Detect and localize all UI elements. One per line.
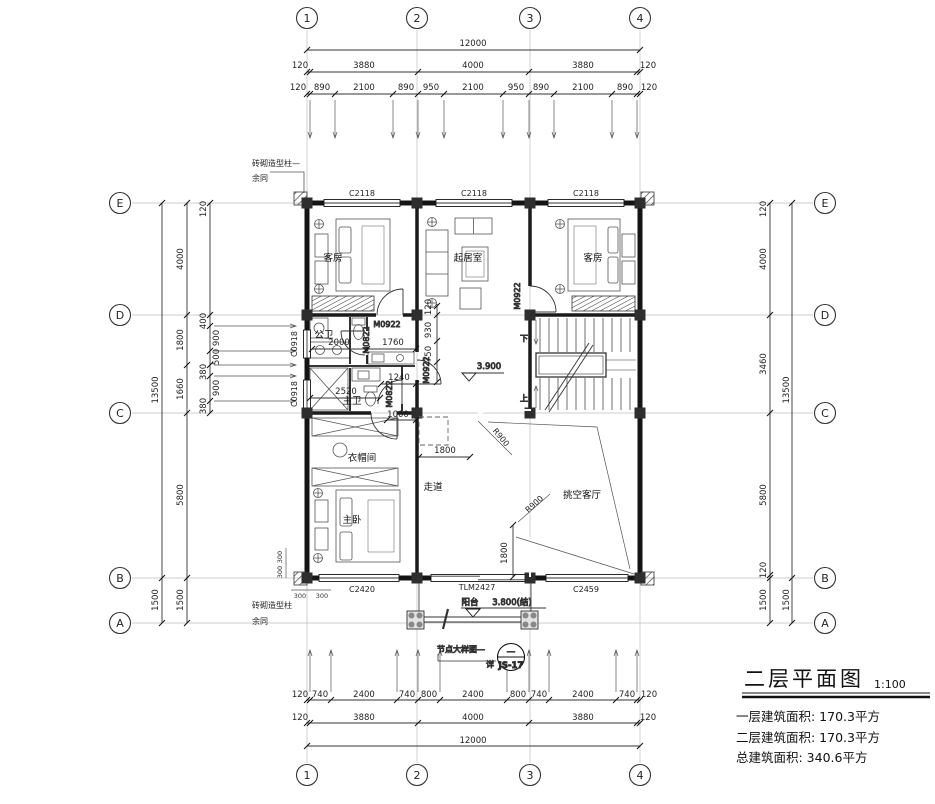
title-block: 二层平面图 1:100 一层建筑面积: 170.3平方 二层建筑面积: 170.… <box>736 667 930 765</box>
note-same-top: 余同 <box>252 173 268 183</box>
furniture-guest-left <box>312 219 390 311</box>
dim: 1800 <box>434 446 456 456</box>
dim: 120 <box>641 83 657 93</box>
grid-row-B: B <box>116 572 124 585</box>
dim: 1500 <box>782 589 792 611</box>
grid-row-Br: B <box>821 572 829 585</box>
room-label-living: 起居室 <box>454 252 483 264</box>
dim: 120 <box>641 690 657 700</box>
note-brick-column-bottom: 砖砌造型柱 <box>252 600 292 610</box>
dim: 120 <box>292 61 308 71</box>
dim: 1500 <box>759 589 769 611</box>
window-label: C2459 <box>573 585 599 594</box>
window-label: C0918 <box>290 331 299 357</box>
floor-plan-sheet: 1 2 3 4 1 2 3 4 E D C B A E D C B A 1200… <box>0 0 935 799</box>
dim: 930 <box>424 322 434 338</box>
detail-callout: — JS-17 节点大样图— 详 <box>437 644 525 672</box>
level-floor: 3.900 <box>477 362 501 372</box>
dim: 4000 <box>759 248 769 270</box>
dim: 4000 <box>462 713 484 723</box>
dim: 4000 <box>462 61 484 71</box>
dim: 750 <box>424 346 434 362</box>
dim: 740 <box>531 690 547 700</box>
dim: 900 <box>212 380 222 396</box>
level-balcony: 3.800(结) <box>492 597 531 608</box>
dim: 120 <box>199 201 209 217</box>
area-line-2: 二层建筑面积: 170.3平方 <box>736 730 880 745</box>
witness-lines <box>214 324 296 403</box>
dim: 1800 <box>500 542 510 564</box>
dim: 1500 <box>176 589 186 611</box>
dim: 120 <box>424 299 434 315</box>
dim: 5800 <box>759 484 769 506</box>
furniture-guest-right <box>556 219 636 311</box>
void-living-area: R900 R900 1800 1800 <box>416 410 634 580</box>
door-label: M0922 <box>513 282 522 309</box>
door-label: TLM2427 <box>458 583 496 592</box>
dim: 1800 <box>176 329 186 351</box>
radius-label: R900 <box>524 494 546 515</box>
grid-row-Dr: D <box>821 309 829 322</box>
dim: 1240 <box>388 373 410 383</box>
dim: 120 <box>759 201 769 217</box>
window-label: C2420 <box>349 585 375 594</box>
area-line-1: 一层建筑面积: 170.3平方 <box>736 709 880 724</box>
dim: 300 <box>316 592 328 600</box>
dim: 2100 <box>572 83 594 93</box>
grid-col-4b: 4 <box>637 769 644 782</box>
dim: 950 <box>508 83 524 93</box>
detail-note: 节点大样图— <box>437 644 485 654</box>
dim: 800 <box>421 690 437 700</box>
stairs: 下 上 <box>520 318 636 412</box>
grid-row-A: A <box>116 617 124 630</box>
dim: 890 <box>617 83 633 93</box>
dim: 1500 <box>151 589 161 611</box>
dim: 950 <box>423 83 439 93</box>
dim: 12000 <box>459 39 486 49</box>
grid-col-2b: 2 <box>414 769 421 782</box>
dim: 800 <box>510 690 526 700</box>
stair-down-label: 下 <box>520 334 528 343</box>
dim: 740 <box>399 690 415 700</box>
grid-col-3b: 3 <box>527 769 534 782</box>
room-label-wardrobe: 衣帽间 <box>348 452 377 464</box>
callout-sheet-ref: JS-17 <box>498 661 524 671</box>
grid-col-1: 1 <box>304 12 311 25</box>
grid-col-4: 4 <box>637 12 644 25</box>
dim: 3880 <box>572 61 594 71</box>
grid-col-1b: 1 <box>304 769 311 782</box>
window-label: C0918 <box>290 381 299 407</box>
drawing-title: 二层平面图 <box>744 667 864 691</box>
dim: 120 <box>640 61 656 71</box>
dim: 3460 <box>759 353 769 375</box>
grid-bubble-labels: 1 2 3 4 1 2 3 4 E D C B A E D C B A <box>116 12 829 782</box>
room-label-master: 主卧 <box>342 514 362 526</box>
room-label-guest-right: 客房 <box>583 252 602 264</box>
dimensions-top: 12000 120 3880 4000 3880 120 120 890 210… <box>290 39 657 138</box>
balcony-name: 阳台 <box>461 597 478 608</box>
room-label-bath-master: 主卫 <box>342 395 362 407</box>
dim: 120 <box>640 713 656 723</box>
window-label: C2118 <box>461 189 487 198</box>
dim: 300 <box>276 551 284 563</box>
dim: 13500 <box>151 376 161 403</box>
dim: 3880 <box>353 61 375 71</box>
note-same-bottom: 余同 <box>252 616 268 626</box>
furniture-wardrobe-room <box>312 418 398 486</box>
void-dashed-outline <box>419 417 448 445</box>
dim: 2100 <box>462 83 484 93</box>
dim: 4000 <box>176 248 186 270</box>
dim: 900 <box>212 330 222 346</box>
dim: 3880 <box>353 713 375 723</box>
grid-row-Cr: C <box>821 407 829 420</box>
dim: 1660 <box>176 378 186 400</box>
dim: 12000 <box>459 736 486 746</box>
dim: 120 <box>292 690 308 700</box>
radius-label: R900 <box>491 427 511 449</box>
dimensions-bottom: 120 740 2400 740 800 2400 800 740 2400 7… <box>292 650 657 749</box>
dim: 2100 <box>353 83 375 93</box>
room-label-bath-public: 公卫 <box>314 330 334 341</box>
dim: 400 <box>199 313 209 329</box>
dim: 13500 <box>782 376 792 403</box>
grid-row-Ar: A <box>821 617 829 630</box>
room-label-guest-left: 客房 <box>323 252 342 264</box>
door-guest-right <box>530 286 556 312</box>
dim: 1760 <box>382 338 404 348</box>
drawing-scale: 1:100 <box>874 678 906 691</box>
door-label: M0922 <box>373 320 400 329</box>
stair-up-label: 上 <box>520 394 528 403</box>
dim: 1000 <box>387 410 409 420</box>
dim: 120 <box>292 713 308 723</box>
dim: 500 <box>212 349 222 365</box>
dim: 300 <box>294 592 306 600</box>
window-label: C2118 <box>573 189 599 198</box>
room-label-corridor: 走道 <box>423 481 443 493</box>
dim: 3880 <box>572 713 594 723</box>
room-label-void: 挑空客厅 <box>563 489 602 501</box>
dim: 2400 <box>462 690 484 700</box>
grid-col-2: 2 <box>414 12 421 25</box>
dim: 120 <box>759 562 769 578</box>
dim: 890 <box>314 83 330 93</box>
grid-row-Er: E <box>822 197 829 210</box>
dim: 5800 <box>176 484 186 506</box>
dim: 380 <box>199 364 209 380</box>
witness-lines <box>308 100 639 138</box>
dim: 380 <box>199 398 209 414</box>
dim: 120 <box>290 83 306 93</box>
detail-see: 详 <box>486 659 494 669</box>
door-label: M0822 <box>385 380 394 407</box>
dim: 740 <box>312 690 328 700</box>
dim: 890 <box>398 83 414 93</box>
dim: 2400 <box>572 690 594 700</box>
dim: 890 <box>533 83 549 93</box>
witness-lines <box>308 650 639 692</box>
floor-plan-canvas: 1 2 3 4 1 2 3 4 E D C B A E D C B A 1200… <box>0 0 935 799</box>
area-line-3: 总建筑面积: 340.6平方 <box>736 750 867 765</box>
grid-row-E: E <box>117 197 124 210</box>
grid-col-3: 3 <box>527 12 534 25</box>
callout-number: — <box>507 647 516 657</box>
dim: 2400 <box>353 690 375 700</box>
dim: 300 <box>276 566 284 578</box>
note-brick-column-top: 砖砌造型柱— <box>252 158 300 168</box>
door-guest-left <box>377 289 403 315</box>
dim: 740 <box>619 690 635 700</box>
grid-row-D: D <box>116 309 124 322</box>
grid-row-C: C <box>116 407 124 420</box>
window-label: C2118 <box>349 189 375 198</box>
